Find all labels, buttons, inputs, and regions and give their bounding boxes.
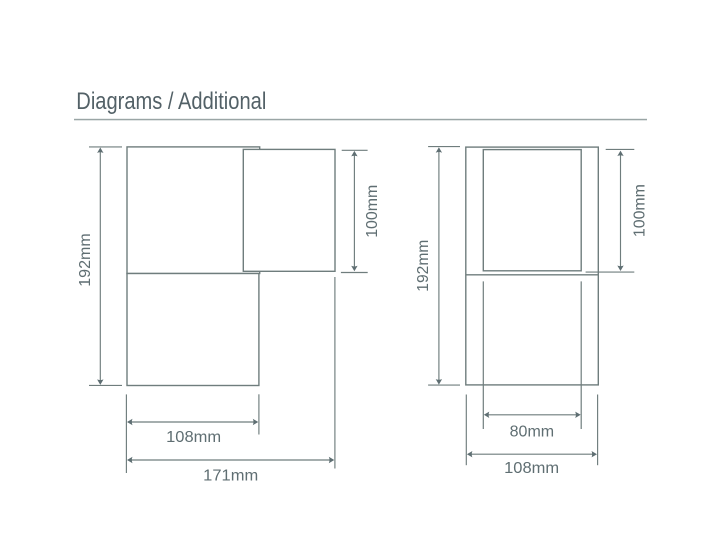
svg-text:192mm: 192mm bbox=[415, 240, 432, 292]
svg-text:171mm: 171mm bbox=[203, 468, 258, 485]
svg-text:100mm: 100mm bbox=[364, 185, 381, 238]
svg-text:100mm: 100mm bbox=[631, 184, 648, 237]
svg-text:108mm: 108mm bbox=[504, 460, 559, 477]
svg-text:192mm: 192mm bbox=[77, 233, 94, 287]
svg-text:Diagrams / Additional: Diagrams / Additional bbox=[76, 89, 266, 115]
svg-text:80mm: 80mm bbox=[510, 424, 555, 441]
svg-text:108mm: 108mm bbox=[166, 429, 221, 446]
